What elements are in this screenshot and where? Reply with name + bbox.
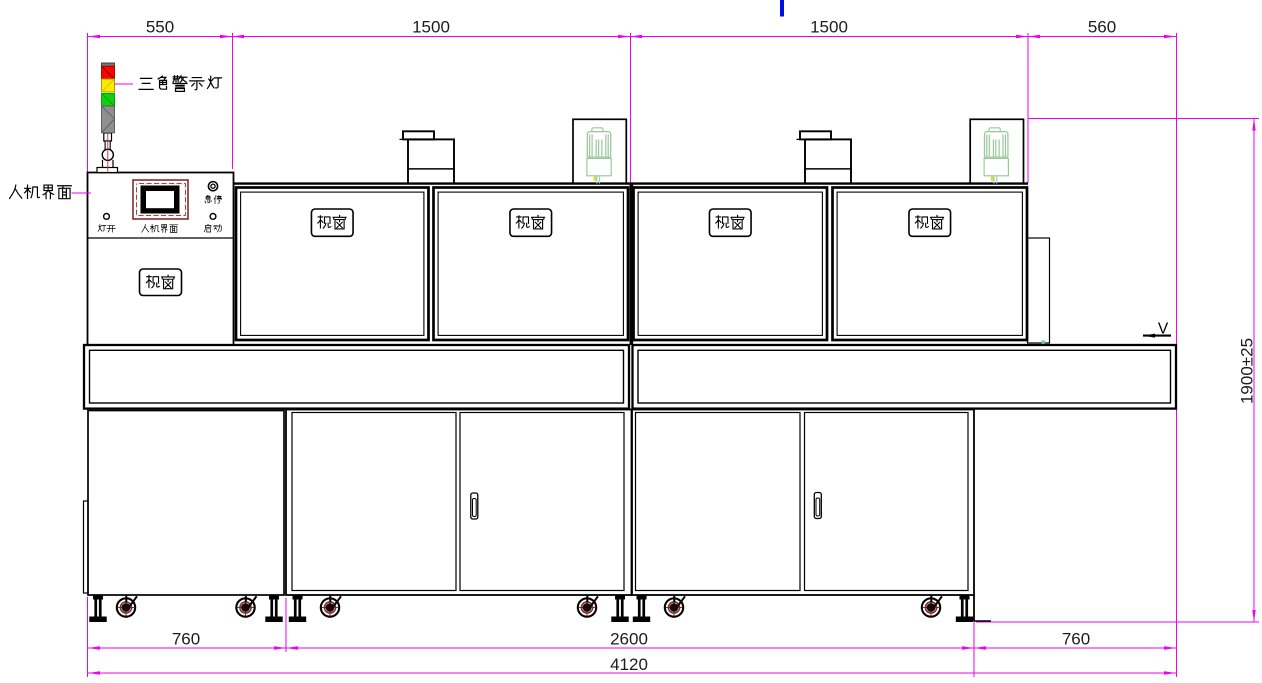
svg-text:1500: 1500 [412,18,450,37]
svg-text:760: 760 [1062,630,1090,649]
svg-text:560: 560 [1088,18,1116,37]
svg-text:760: 760 [172,630,200,649]
svg-text:1900±25: 1900±25 [1238,338,1257,404]
svg-text:2600: 2600 [610,630,648,649]
svg-text:4120: 4120 [610,655,648,674]
svg-text:550: 550 [146,18,174,37]
svg-text:1500: 1500 [810,18,848,37]
